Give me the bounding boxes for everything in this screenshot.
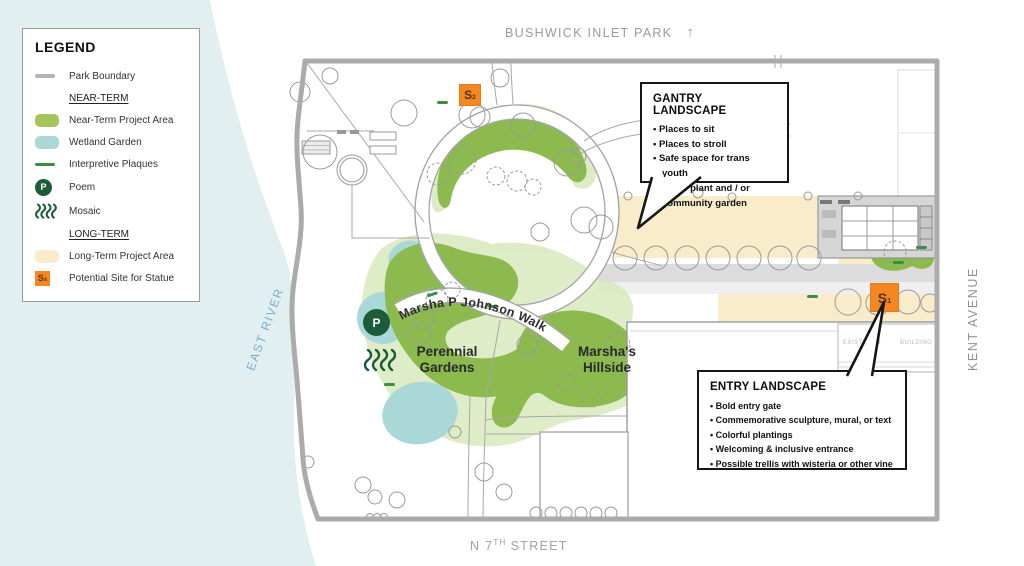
- gantry-callout-title: GANTRY LANDSCAPE: [653, 93, 776, 117]
- near-term-area-icon: [35, 114, 69, 127]
- legend-item-wetland: Wetland Garden: [35, 131, 187, 153]
- legend-item-plaques: Interpretive Plaques: [35, 153, 187, 175]
- marshas-hillside-label: Marsha's Hillside: [555, 344, 659, 377]
- gantry-callout-list: Places to sit Places to stroll Safe spac…: [653, 123, 776, 211]
- bushwick-inlet-park-label: BUSHWICK INLET PARK ↑: [505, 24, 694, 41]
- legend-item-poem: P Poem: [35, 175, 187, 199]
- entry-landscape-callout: ENTRY LANDSCAPE Bold entry gate Commemor…: [697, 370, 907, 470]
- statue-site-marker-1: S1: [870, 283, 899, 312]
- gantry-bullet: Native plant and / or community garden: [653, 182, 776, 211]
- gantry-bullet: Places to sit: [653, 123, 776, 138]
- entry-bullet: Welcoming & inclusive entrance: [710, 442, 894, 456]
- street-rest: STREET: [511, 539, 568, 553]
- legend-item-near-term-area: Near-Term Project Area: [35, 109, 187, 131]
- street-prefix: N 7: [470, 539, 493, 553]
- north-label-text: BUSHWICK INLET PARK: [505, 26, 672, 40]
- statue-1-letter: S: [878, 290, 887, 306]
- statue-site-icon: Sx: [35, 271, 69, 286]
- legend-panel: LEGEND Park Boundary NEAR-TERM Near-Term…: [22, 28, 200, 302]
- legend-item-mosaic: Mosaic: [35, 199, 187, 223]
- long-term-area-icon: [35, 250, 69, 263]
- poem-marker: P: [363, 309, 390, 336]
- perennial-gardens-label: Perennial Gardens: [395, 344, 499, 377]
- kent-avenue-label: KENT AVENUE: [966, 253, 980, 385]
- entry-callout-title: ENTRY LANDSCAPE: [710, 381, 894, 393]
- gantry-landscape-callout: GANTRY LANDSCAPE Places to sit Places to…: [640, 82, 789, 183]
- poem-icon: P: [35, 179, 69, 196]
- n-7th-street-label: N 7THSTREET: [470, 538, 568, 553]
- gantry-bullet: Safe space for trans youth: [653, 152, 776, 181]
- statue-site-marker-2: S2: [459, 84, 481, 106]
- mosaic-legend-icon: [35, 203, 69, 220]
- park-boundary-icon: [35, 74, 69, 78]
- legend-item-statue: Sx Potential Site for Statue: [35, 267, 187, 289]
- legend-heading-long-term: LONG-TERM: [35, 223, 187, 245]
- statue-1-subscript: 1: [887, 296, 891, 305]
- legend-item-park-boundary: Park Boundary: [35, 65, 187, 87]
- interpretive-plaques-icon: [35, 163, 69, 166]
- entry-callout-list: Bold entry gate Commemorative sculpture,…: [710, 399, 894, 471]
- legend-item-long-term-area: Long-Term Project Area: [35, 245, 187, 267]
- legend-title: LEGEND: [35, 39, 187, 55]
- wetland-garden-icon: [35, 136, 69, 149]
- statue-2-subscript: 2: [472, 94, 476, 101]
- park-plan-page: Marsha P Johnson Walk BUSHWICK INLET PAR…: [0, 0, 1024, 566]
- entry-bullet: Bold entry gate: [710, 399, 894, 413]
- mosaic-icon: [364, 348, 396, 379]
- gantry-bullet: Places to stroll: [653, 138, 776, 153]
- entry-bullet: Colorful plantings: [710, 428, 894, 442]
- entry-bullet: Commemorative sculpture, mural, or text: [710, 413, 894, 427]
- existing-building-label-left: EXISTING 3: [843, 340, 881, 346]
- statue-2-letter: S: [464, 88, 472, 102]
- entry-bullet: Possible trellis with wisteria or other …: [710, 457, 894, 471]
- street-ordinal: TH: [493, 538, 506, 547]
- legend-heading-near-term: NEAR-TERM: [35, 87, 187, 109]
- existing-building-label-right: BUILDING: [900, 340, 932, 346]
- north-arrow-icon: ↑: [686, 24, 694, 41]
